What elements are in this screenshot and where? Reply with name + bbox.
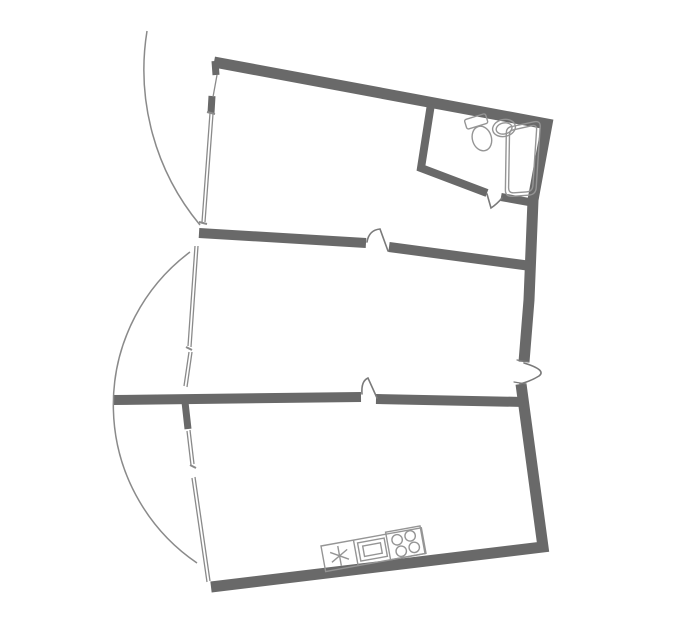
window-joint-ticks: [186, 112, 215, 468]
toilet-icon: [464, 113, 495, 153]
wall-stubs: [185, 61, 216, 429]
outer-wall: [211, 62, 547, 587]
oven-icon: [358, 538, 388, 561]
door-upper-divider: [367, 229, 388, 251]
burner: [391, 534, 403, 546]
bathroom-fixtures: [464, 113, 540, 196]
burner: [408, 541, 420, 553]
balcony-arcs: [113, 31, 200, 563]
windows: [184, 75, 217, 582]
divider-wall-lower: [113, 397, 524, 402]
floor-plan-canvas: [0, 0, 679, 634]
kitchen-sink-icon: [329, 544, 350, 567]
doors: [362, 194, 541, 398]
burner: [395, 545, 407, 557]
balcony-arc-upper: [144, 31, 200, 225]
door-lower-divider: [362, 378, 377, 398]
floor-plan-drawing: [0, 0, 679, 634]
washbasin-inner-bowl: [495, 121, 513, 135]
burner: [404, 530, 416, 542]
door-entrance: [520, 363, 541, 384]
bathtub-inner: [509, 125, 537, 192]
door-bathroom: [487, 194, 502, 208]
window-middle-room: [184, 246, 198, 387]
walls: [113, 61, 547, 587]
divider-wall-upper: [199, 233, 531, 266]
